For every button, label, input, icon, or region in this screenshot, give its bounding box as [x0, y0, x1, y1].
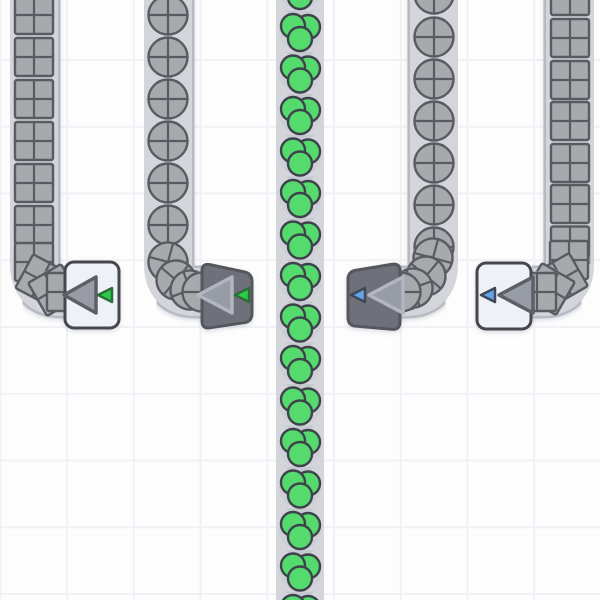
item-berry-cluster	[279, 54, 321, 93]
item-berry-cluster	[279, 220, 321, 259]
item-circle-crate	[413, 18, 455, 57]
item-circle-crate	[147, 0, 189, 35]
item-square-crate	[13, 0, 55, 35]
item-berry-cluster	[279, 428, 321, 467]
berry-circle	[288, 567, 312, 591]
item-square-crate	[549, 185, 591, 224]
item-square-crate	[13, 164, 55, 203]
item-berry-cluster	[279, 179, 321, 218]
collector-2[interactable]	[198, 264, 252, 328]
item-circle-crate	[413, 186, 455, 225]
item-berry-cluster	[279, 137, 321, 176]
berry-circle	[288, 525, 312, 549]
berry-circle	[288, 359, 312, 383]
berry-circle	[288, 193, 312, 217]
item-berry-cluster	[279, 469, 321, 508]
berry-circle	[288, 318, 312, 342]
item-square-crate	[13, 206, 55, 245]
berry-circle	[288, 110, 312, 134]
item-berry-cluster	[279, 13, 321, 52]
berry-circle	[288, 27, 312, 51]
item-circle-crate	[413, 60, 455, 99]
berry-circle	[288, 152, 312, 176]
collector-4[interactable]	[477, 263, 533, 329]
item-square-crate	[13, 38, 55, 77]
collector-3[interactable]	[348, 264, 403, 329]
item-berry-cluster	[279, 262, 321, 301]
item-square-crate	[549, 61, 591, 100]
item-circle-crate	[147, 122, 189, 161]
item-circle-crate	[413, 102, 455, 141]
item-circle-crate	[147, 38, 189, 77]
item-berry-cluster	[279, 386, 321, 425]
item-berry-cluster	[279, 345, 321, 384]
item-square-crate	[549, 19, 591, 58]
berry-circle	[288, 276, 312, 300]
berry-circle	[288, 401, 312, 425]
item-berry-cluster	[279, 96, 321, 135]
berry-circle	[288, 235, 312, 259]
game-viewport	[0, 0, 600, 600]
item-square-crate	[13, 122, 55, 161]
item-square-crate	[549, 102, 591, 141]
item-circle-crate	[147, 80, 189, 119]
berry-circle	[288, 484, 312, 508]
game-grid-background	[0, 0, 600, 600]
item-square-crate	[549, 144, 591, 183]
item-circle-crate	[147, 164, 189, 203]
item-berry-cluster	[279, 552, 321, 591]
item-square-crate	[549, 0, 591, 16]
item-circle-crate	[147, 206, 189, 245]
item-berry-cluster	[279, 303, 321, 342]
collector-1[interactable]	[64, 262, 119, 328]
berry-circle	[288, 69, 312, 93]
berry-circle	[288, 442, 312, 466]
item-circle-crate	[413, 144, 455, 183]
item-square-crate	[13, 80, 55, 119]
item-berry-cluster	[279, 511, 321, 550]
